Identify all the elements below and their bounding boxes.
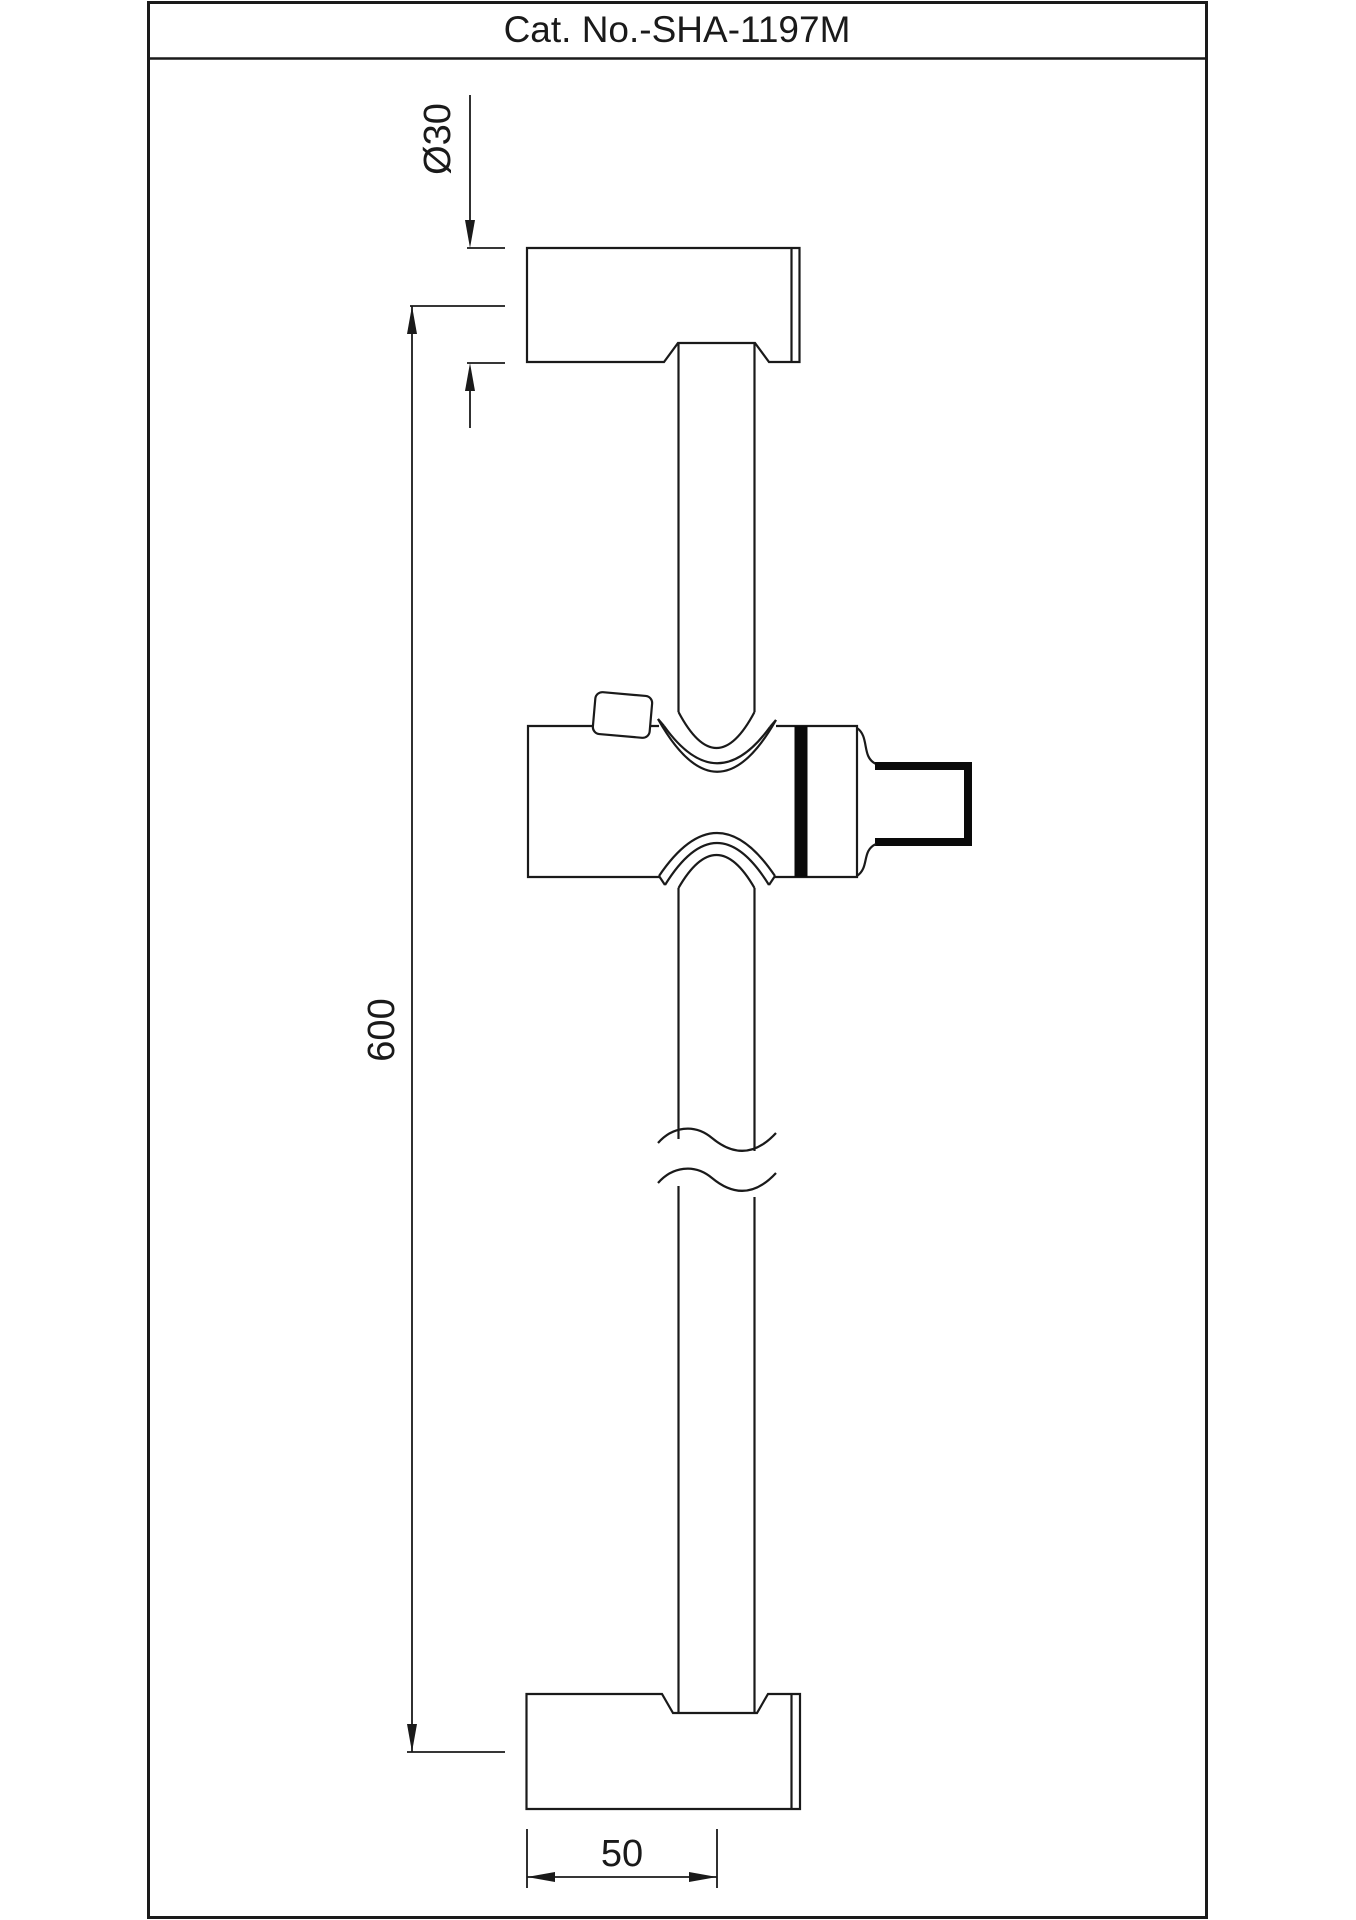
- dome-right-tip: [769, 876, 775, 885]
- holder-cup-socket: [875, 766, 968, 842]
- dim50-left-arrow: [527, 1872, 555, 1882]
- saddle-inner-arc: [664, 726, 770, 763]
- grip-band: [795, 726, 808, 877]
- lock-knob: [592, 692, 652, 739]
- dia30-down-arrow: [465, 220, 475, 248]
- dimension-length-600: 600: [361, 306, 505, 1752]
- lower-dome: [659, 833, 775, 888]
- holder-bottom-scurve: [857, 844, 876, 876]
- dim50-label: 50: [601, 1833, 643, 1875]
- dim600-down-arrow: [407, 1724, 417, 1752]
- dia30-label: Ø30: [417, 103, 459, 175]
- slide-bar-tube-upper: [679, 343, 755, 748]
- slider-assembly: [528, 692, 968, 888]
- top-bracket-outline: [527, 248, 800, 362]
- top-wall-bracket: [527, 248, 800, 362]
- drawing-sheet: Cat. No.-SHA-1197M: [0, 0, 1356, 1920]
- dome-left-tip: [659, 876, 665, 885]
- upper-saddle: [658, 719, 776, 772]
- break-line-lower: [658, 1169, 776, 1191]
- dia30-up-arrow: [465, 363, 475, 391]
- holder-top-scurve: [857, 728, 876, 764]
- dimension-offset-50: 50: [527, 1829, 717, 1888]
- tube-lower-end-curve: [679, 712, 755, 748]
- dimension-diameter-30: Ø30: [417, 95, 505, 428]
- break-line-upper: [658, 1129, 776, 1151]
- catalog-number-title: Cat. No.-SHA-1197M: [504, 9, 851, 50]
- slider-body-right: [774, 726, 857, 877]
- dim50-right-arrow: [689, 1872, 717, 1882]
- slider-body-left: [528, 726, 660, 877]
- bottom-wall-bracket: [527, 1694, 801, 1809]
- technical-drawing-canvas: Cat. No.-SHA-1197M: [0, 0, 1356, 1920]
- dim600-up-arrow: [407, 306, 417, 334]
- handset-holder-cup: [857, 728, 968, 876]
- dim600-label: 600: [361, 998, 403, 1061]
- tube-upper-end-curve: [679, 855, 755, 888]
- slide-bar-tube-lower: [658, 888, 776, 1713]
- bottom-bracket-outline: [527, 1694, 801, 1809]
